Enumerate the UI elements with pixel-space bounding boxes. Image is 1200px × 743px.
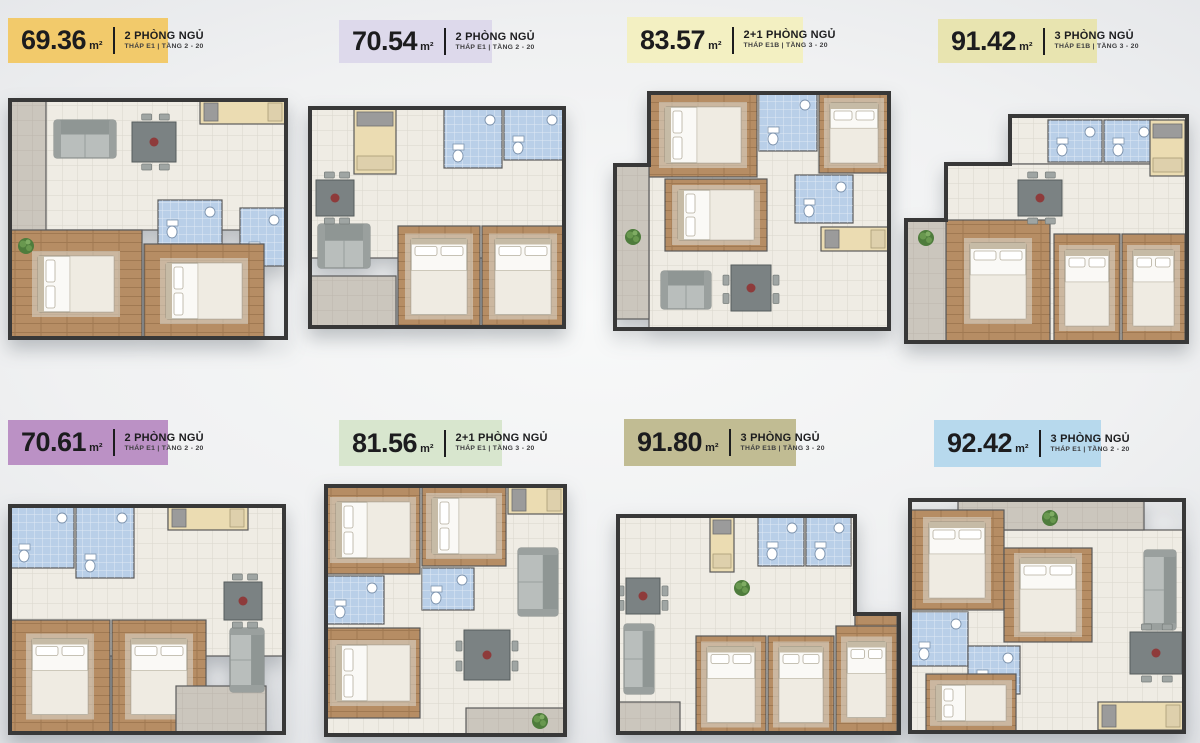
unit-badge: 70.54 m² 2 PHÒNG NGỦ THÁP E1 | TẦNG 2 - … [339,20,492,63]
floor-plan [607,85,897,335]
floor-plan [302,100,572,335]
badge-divider [113,429,115,456]
unit-location-label: THÁP E1B | TẦNG 3 - 20 [1055,44,1084,51]
unit-area-unit: m² [1019,41,1032,53]
unit-badge-text: 3 PHÒNG NGỦ THÁP E1 | TẦNG 2 - 20 [1051,434,1088,454]
unit-location-label: THÁP E1 | TẦNG 2 - 20 [1051,447,1088,454]
unit-badge: 92.42 m² 3 PHÒNG NGỦ THÁP E1 | TẦNG 2 - … [934,420,1101,467]
unit-location-label: THÁP E1B | TẦNG 3 - 20 [744,43,790,50]
unit-badge: 91.80 m² 3 PHÒNG NGỦ THÁP E1B | TẦNG 3 -… [624,419,796,466]
unit-area: 69.36 [21,27,86,54]
unit-area-unit: m² [705,442,718,454]
badge-divider [732,27,734,54]
badge-divider [1043,28,1045,55]
unit-location-label: THÁP E1B | TẦNG 3 - 20 [741,446,783,453]
unit-location-label: THÁP E1 | TẦNG 2 - 20 [456,45,479,52]
unit-area-unit: m² [420,41,433,53]
unit-bedrooms-label: 2 PHÒNG NGỦ [125,31,155,42]
unit-area-unit: m² [1015,443,1028,455]
unit-location-label: THÁP E1 | TẦNG 2 - 20 [125,446,155,453]
unit-badge-text: 2 PHÒNG NGỦ THÁP E1 | TẦNG 2 - 20 [125,433,155,453]
unit-area-unit: m² [420,443,433,455]
unit-badge: 91.42 m² 3 PHÒNG NGỦ THÁP E1B | TẦNG 3 -… [938,19,1097,63]
unit-badge: 81.56 m² 2+1 PHÒNG NGỦ THÁP E1 | TẦNG 3 … [339,420,502,466]
unit-area: 81.56 [352,430,417,457]
floor-plan [610,508,906,741]
unit-location-label: THÁP E1 | TẦNG 2 - 20 [125,44,155,51]
floor-plan [898,108,1195,348]
unit-bedrooms-label: 2+1 PHÒNG NGỦ [456,433,489,444]
floor-plan [318,478,574,743]
unit-area: 91.80 [637,429,702,456]
badge-divider [1039,430,1041,457]
unit-bedrooms-label: 3 PHÒNG NGỦ [741,433,783,444]
badge-divider [729,429,731,456]
unit-area-unit: m² [89,442,102,454]
unit-area-group: 92.42 m² [947,430,1029,457]
unit-badge-text: 2+1 PHÒNG NGỦ THÁP E1B | TẦNG 3 - 20 [744,30,790,50]
unit-area-group: 69.36 m² [21,27,103,54]
unit-area: 70.61 [21,429,86,456]
unit-bedrooms-label: 3 PHÒNG NGỦ [1055,31,1084,42]
unit-bedrooms-label: 2+1 PHÒNG NGỦ [744,30,790,41]
unit-area-group: 70.54 m² [352,28,434,55]
unit-badge: 83.57 m² 2+1 PHÒNG NGỦ THÁP E1B | TẦNG 3… [627,17,803,63]
badge-divider [444,430,446,457]
unit-location-label: THÁP E1 | TẦNG 3 - 20 [456,446,489,453]
unit-area: 91.42 [951,28,1016,55]
unit-badge: 70.61 m² 2 PHÒNG NGỦ THÁP E1 | TẦNG 2 - … [8,420,168,465]
unit-bedrooms-label: 3 PHÒNG NGỦ [1051,434,1088,445]
unit-badge-text: 3 PHÒNG NGỦ THÁP E1B | TẦNG 3 - 20 [741,433,783,453]
unit-badge: 69.36 m² 2 PHÒNG NGỦ THÁP E1 | TẦNG 2 - … [8,18,168,63]
unit-area: 83.57 [640,27,705,54]
badge-divider [444,28,446,55]
unit-badge-text: 2+1 PHÒNG NGỦ THÁP E1 | TẦNG 3 - 20 [456,433,489,453]
unit-area: 92.42 [947,430,1012,457]
unit-area: 70.54 [352,28,417,55]
unit-badge-text: 2 PHÒNG NGỦ THÁP E1 | TẦNG 2 - 20 [456,32,479,52]
floorplan-gallery: 69.36 m² 2 PHÒNG NGỦ THÁP E1 | TẦNG 2 - … [0,0,1200,743]
floor-plan [2,498,292,741]
badge-divider [113,27,115,54]
unit-bedrooms-label: 2 PHÒNG NGỦ [125,433,155,444]
unit-badge-text: 2 PHÒNG NGỦ THÁP E1 | TẦNG 2 - 20 [125,31,155,51]
unit-area-unit: m² [89,40,102,52]
unit-area-unit: m² [708,40,721,52]
floor-plan [902,492,1193,741]
unit-area-group: 81.56 m² [352,430,434,457]
floor-plan [2,90,302,345]
unit-bedrooms-label: 2 PHÒNG NGỦ [456,32,479,43]
unit-badge-text: 3 PHÒNG NGỦ THÁP E1B | TẦNG 3 - 20 [1055,31,1084,51]
unit-area-group: 91.42 m² [951,28,1033,55]
unit-area-group: 83.57 m² [640,27,722,54]
unit-area-group: 91.80 m² [637,429,719,456]
unit-area-group: 70.61 m² [21,429,103,456]
